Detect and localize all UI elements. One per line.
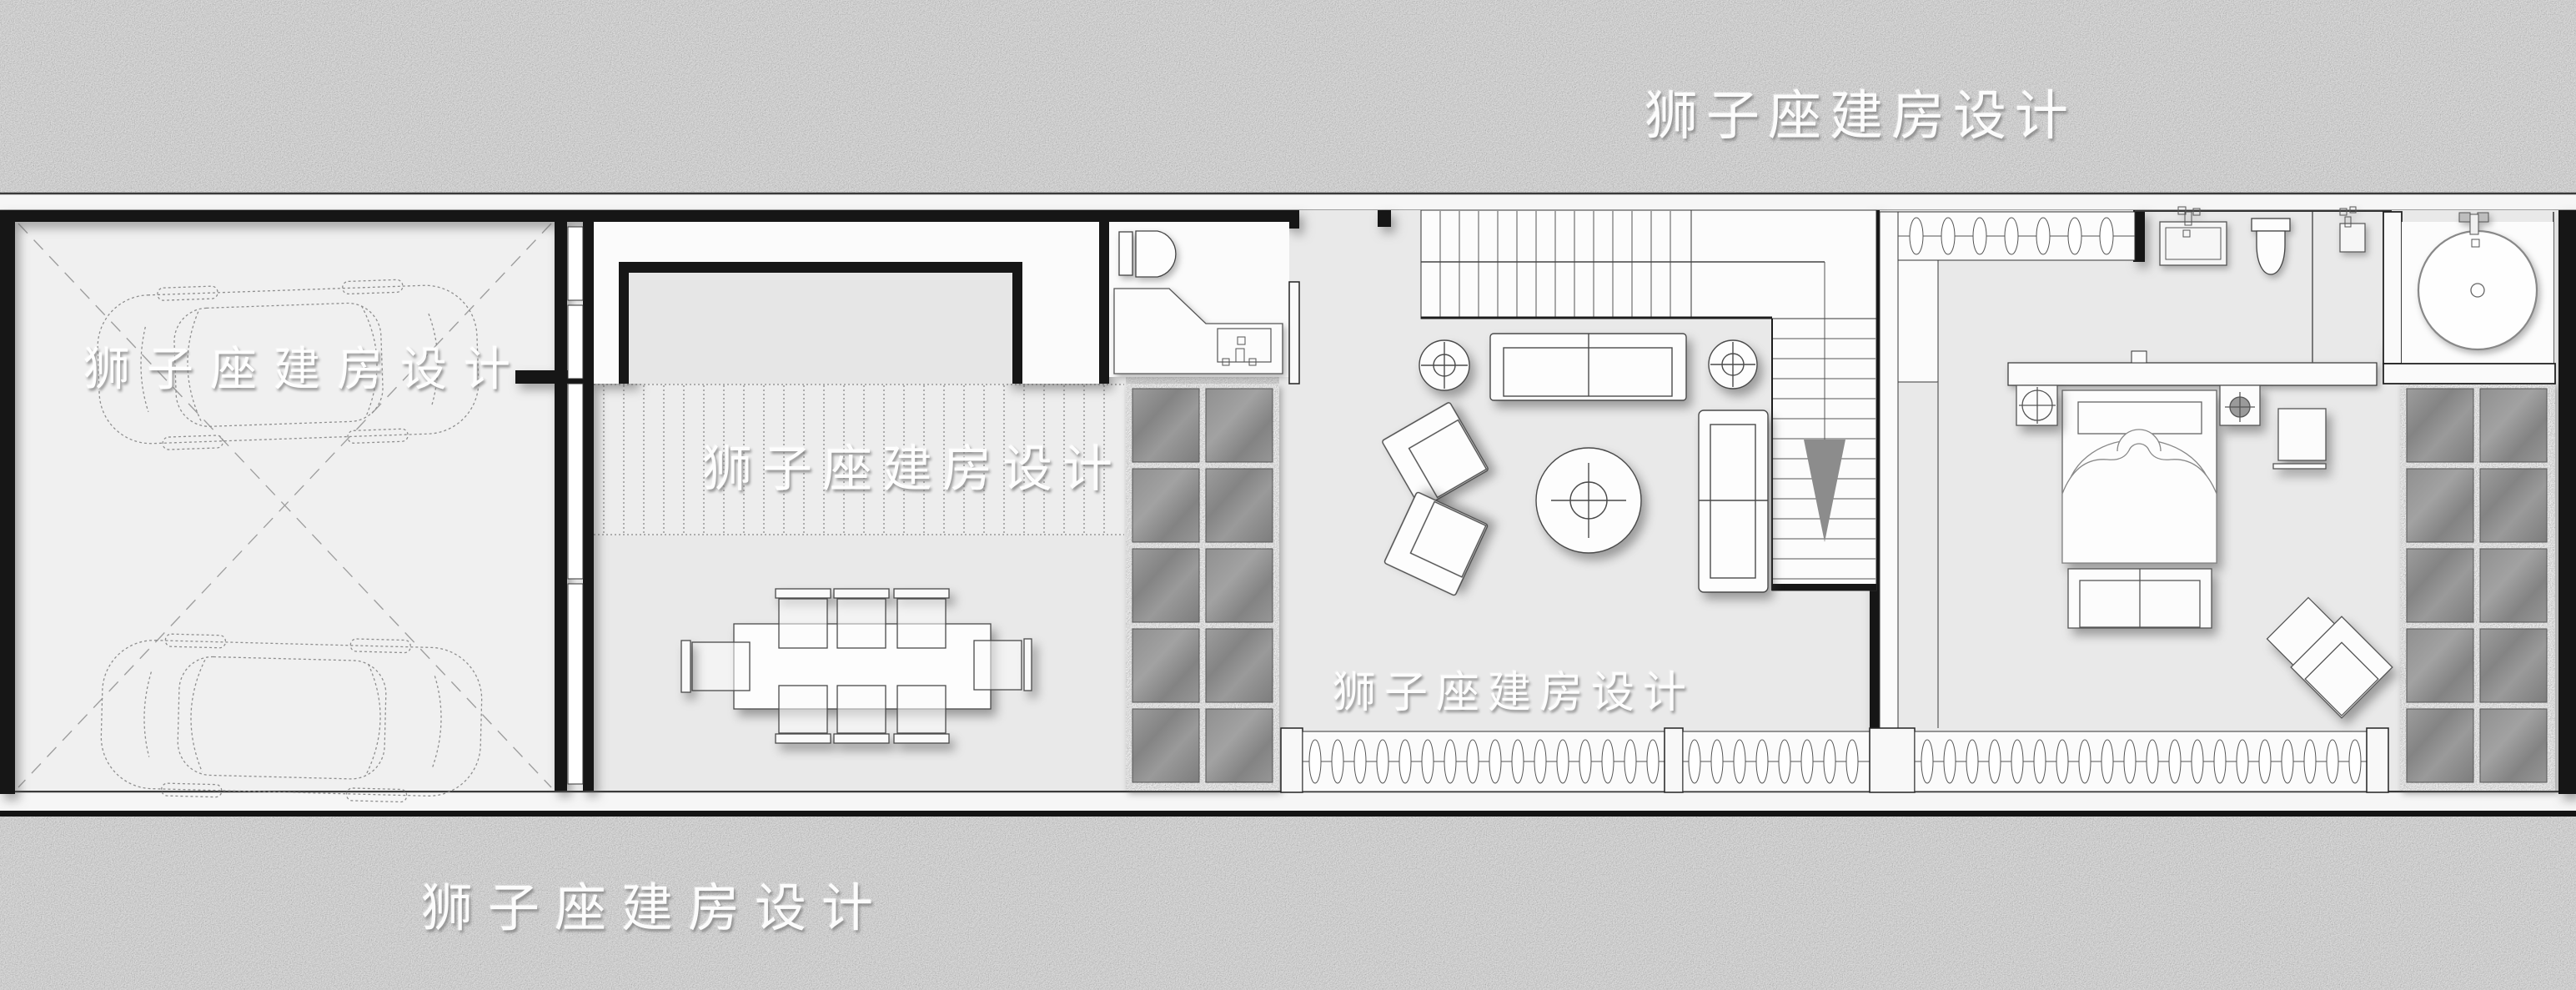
living-door-stub — [1378, 210, 1391, 227]
entry-deck — [594, 384, 1124, 535]
bed-icon — [2062, 390, 2217, 563]
tub-room — [2383, 212, 2555, 384]
hall-wall — [1880, 212, 1898, 729]
nightstand-left-icon — [2016, 385, 2057, 425]
tile-wall-dining — [1126, 384, 1279, 791]
closet-block — [1898, 260, 1938, 382]
floor-plan-drawing — [0, 0, 2576, 990]
side-table-right-icon — [1709, 340, 1757, 389]
desk-icon — [2273, 409, 2326, 469]
side-table-left-icon — [1419, 340, 1469, 390]
dining-left-wall — [583, 210, 594, 791]
coffee-table-icon — [1536, 448, 1641, 553]
right-outer-wall — [2558, 210, 2576, 794]
floor-plan-stage: 狮子座建房设计狮子座建房设计狮子座建房设计狮子座建房设计狮子座建房设计 — [0, 0, 2576, 990]
headboard-wall — [2008, 363, 2377, 385]
toilet-icon — [1119, 231, 1176, 277]
left-outer-wall — [0, 210, 15, 794]
porch-right-wall — [1099, 210, 1109, 384]
porch-top-wall — [588, 210, 1109, 222]
powder-door-stub — [1289, 210, 1299, 229]
entry-porch — [594, 222, 1099, 384]
sofa-icon — [1490, 334, 1686, 400]
powder-room-top-wall — [1109, 210, 1299, 222]
plan-bottom-edge — [0, 791, 2576, 817]
tile-wall-bedroom — [2400, 382, 2555, 791]
dining-chairs-top — [776, 589, 949, 598]
plan-top-edge — [0, 193, 2576, 210]
nightstand-right-icon — [2220, 385, 2260, 425]
powder-room — [1109, 222, 1299, 384]
garage-window-wall — [568, 227, 583, 784]
chaise-icon — [1699, 410, 1768, 592]
garage-right-wall — [555, 220, 567, 791]
garage-top-wall — [12, 210, 588, 222]
foot-bench-icon — [2068, 569, 2212, 628]
